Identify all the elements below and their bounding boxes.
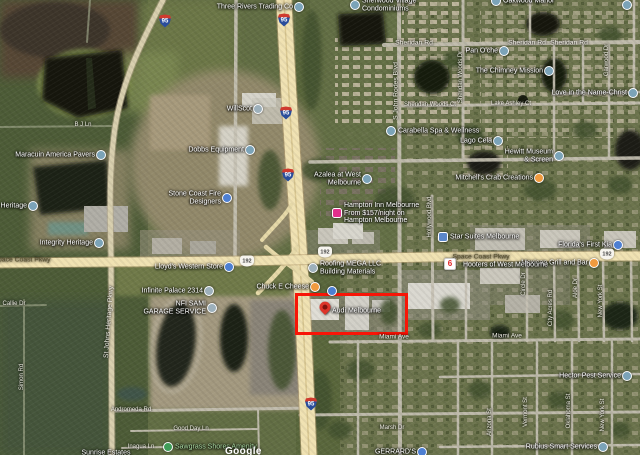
nfi-sami-garage-service-label[interactable]: NFI SAMIGARAGE SERVICE bbox=[143, 301, 206, 316]
the-chimney-mission-label[interactable]: The Chimney Mission bbox=[476, 67, 543, 75]
pan-oche-label[interactable]: Pan O'che bbox=[466, 47, 498, 55]
chuck-e-cheese-marker-icon[interactable] bbox=[310, 282, 320, 292]
sherwood-village-condominiums-marker-icon[interactable] bbox=[350, 0, 360, 10]
motel-6-logo-marker-icon[interactable]: 6 bbox=[444, 258, 456, 270]
roofing-mega-llc-marker-icon[interactable] bbox=[308, 263, 318, 273]
oakwood-manor-label[interactable]: Oakwood Manor bbox=[503, 0, 554, 5]
carabella-spa-wellness-label[interactable]: Carabella Spa & Wellness bbox=[398, 127, 479, 135]
love-in-the-name-christ-label[interactable]: Love in the Name-Christ bbox=[552, 89, 627, 97]
hampton-inn-melbourne-marker-icon[interactable] bbox=[332, 208, 342, 218]
azalea-at-west-melbourne-label[interactable]: Azalea at WestMelbourne bbox=[314, 172, 361, 187]
hooters-of-west-melbourne-label[interactable]: Hooters of West Melbourne bbox=[463, 261, 548, 269]
lago-cela-label[interactable]: Lago Cela bbox=[460, 137, 492, 145]
azalea-at-west-melbourne-marker-icon[interactable] bbox=[362, 174, 372, 184]
a-heritage-marker-icon[interactable] bbox=[28, 201, 38, 211]
dobbs-equipment-marker-icon[interactable] bbox=[245, 145, 255, 155]
sunrise-estates-label[interactable]: Sunrise Estates bbox=[81, 449, 130, 455]
sawgrass-shores-amenity-marker-icon[interactable] bbox=[163, 442, 173, 452]
willscot-label[interactable]: WillScot bbox=[227, 105, 252, 113]
floridas-first-kia-label[interactable]: Florida's First Kia bbox=[558, 241, 612, 249]
a-heritage-label[interactable]: …a Heritage bbox=[0, 202, 27, 210]
dobbs-equipment-label[interactable]: Dobbs Equipment bbox=[188, 146, 244, 154]
roofing-mega-llc-label[interactable]: Roofing MEGA LLCBuilding Materials bbox=[320, 261, 381, 276]
floridas-first-kia-marker-icon[interactable] bbox=[613, 240, 623, 250]
google-watermark: Google bbox=[225, 446, 262, 455]
gerrards-label[interactable]: GERRARD'S bbox=[375, 448, 416, 455]
lloyds-western-store-label[interactable]: Lloyd's Western Store bbox=[155, 263, 223, 271]
carabella-spa-wellness-marker-icon[interactable] bbox=[386, 126, 396, 136]
infinite-palace-2314-marker-icon[interactable] bbox=[204, 286, 214, 296]
nfi-sami-garage-service-marker-icon[interactable] bbox=[207, 303, 217, 313]
the-chimney-mission-marker-icon[interactable] bbox=[544, 66, 554, 76]
hewitt-museum-screen-marker-icon[interactable] bbox=[554, 151, 564, 161]
chuck-e-cheese-label[interactable]: Chuck E Cheese bbox=[256, 283, 309, 291]
hector-pest-service-label[interactable]: Hector Pest Service bbox=[559, 372, 621, 380]
gerrards-marker-icon[interactable] bbox=[417, 447, 427, 455]
lago-cela-marker-icon[interactable] bbox=[493, 136, 503, 146]
oakwood-manor-marker-icon[interactable] bbox=[491, 0, 501, 6]
sherwood-village-condominiums-label[interactable]: Sherwood VillageCondominiums bbox=[362, 0, 416, 13]
lloyds-western-store-marker-icon[interactable] bbox=[224, 262, 234, 272]
star-suites-melbourne-label[interactable]: Star Suites Melbourne bbox=[450, 233, 519, 241]
satellite-map[interactable]: Sheridan RdSheridan RdSheridan RdSherida… bbox=[0, 0, 640, 455]
stone-coast-fire-designers-marker-icon[interactable] bbox=[222, 193, 232, 203]
mitchells-crab-creations-label[interactable]: Mitchell's Crab Creations bbox=[455, 174, 533, 182]
mexican-grill-and-bar-marker-icon[interactable] bbox=[589, 258, 599, 268]
rubius-smart-services-label[interactable]: Rubius Smart Services bbox=[526, 443, 597, 451]
love-in-the-name-christ-marker-icon[interactable] bbox=[628, 88, 638, 98]
three-rivers-trading-co-marker-icon[interactable] bbox=[294, 2, 304, 12]
mitchells-crab-creations-marker-icon[interactable] bbox=[534, 173, 544, 183]
maracuin-america-pavers-label[interactable]: Maracuin America Pavers bbox=[15, 151, 95, 159]
maracuin-america-pavers-marker-icon[interactable] bbox=[96, 150, 106, 160]
audi-melbourne-label[interactable]: Audi Melbourne bbox=[332, 307, 381, 315]
three-rivers-trading-co-label[interactable]: Three Rivers Trading Co bbox=[217, 3, 293, 11]
integrity-heritage-marker-icon[interactable] bbox=[94, 238, 104, 248]
audi-melbourne-marker-icon[interactable] bbox=[317, 299, 333, 315]
infinite-palace-2314-label[interactable]: Infinite Palace 2314 bbox=[142, 287, 204, 295]
stone-coast-fire-designers-label[interactable]: Stone Coast FireDesigners bbox=[168, 191, 221, 206]
hector-pest-service-marker-icon[interactable] bbox=[622, 371, 632, 381]
willscot-marker-icon[interactable] bbox=[253, 104, 263, 114]
poi-layer: Three Rivers Trading CoSherwood VillageC… bbox=[0, 0, 640, 455]
hampton-inn-melbourne-label[interactable]: Hampton Inn MelbourneFrom $157/night onH… bbox=[344, 202, 419, 225]
unlabeled-marker-1-marker-icon[interactable] bbox=[327, 286, 337, 296]
hewitt-museum-screen-label[interactable]: Hewitt Museum& Screen bbox=[505, 149, 553, 164]
star-suites-melbourne-marker-icon[interactable] bbox=[438, 232, 448, 242]
rubius-smart-services-marker-icon[interactable] bbox=[598, 442, 608, 452]
unlabeled-marker-2-marker-icon[interactable] bbox=[622, 0, 632, 10]
integrity-heritage-label[interactable]: Integrity Heritage bbox=[40, 239, 93, 247]
pan-oche-marker-icon[interactable] bbox=[499, 46, 509, 56]
